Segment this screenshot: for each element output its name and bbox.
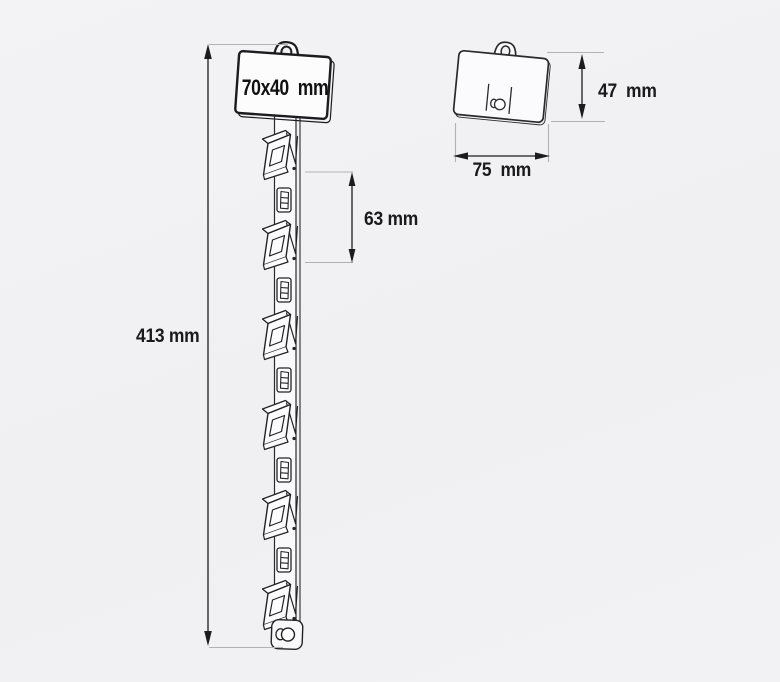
strip-slot (277, 548, 291, 572)
strip-height-label: 413 mm (136, 326, 199, 348)
header-card-figure (453, 38, 605, 162)
clip-spacing-label: 63 mm (364, 209, 418, 231)
stud-head (494, 99, 506, 111)
strip-slot (277, 458, 291, 482)
dimension-drawing-canvas: 70x40 mm 413 mm 63 mm 47 mm 75 mm (0, 0, 780, 682)
strip-slot (277, 278, 291, 302)
header-card-back (453, 38, 552, 125)
technical-drawing-svg (0, 0, 780, 682)
arrowhead-up (349, 172, 356, 186)
dimension-47 (547, 53, 605, 122)
card-width-label: 75 mm (472, 160, 529, 182)
clip-strip-figure (204, 39, 355, 650)
arrowhead-down (578, 104, 585, 119)
extension-lines (547, 53, 605, 122)
strip-slot (277, 188, 291, 212)
card-height-label: 47 mm (598, 81, 657, 103)
strip-slot (277, 368, 291, 392)
extension-lines (305, 172, 353, 263)
arrowhead-up (204, 44, 212, 59)
arrowhead-down (204, 631, 212, 646)
arrowhead-right (535, 152, 550, 159)
arrowhead-down (349, 249, 356, 263)
dimension-75 (453, 123, 550, 162)
strip-bottom-tab (271, 619, 303, 649)
arrowhead-up (578, 54, 585, 69)
dimension-63 (305, 172, 355, 263)
card-size-label: 70x40 mm (239, 75, 332, 101)
